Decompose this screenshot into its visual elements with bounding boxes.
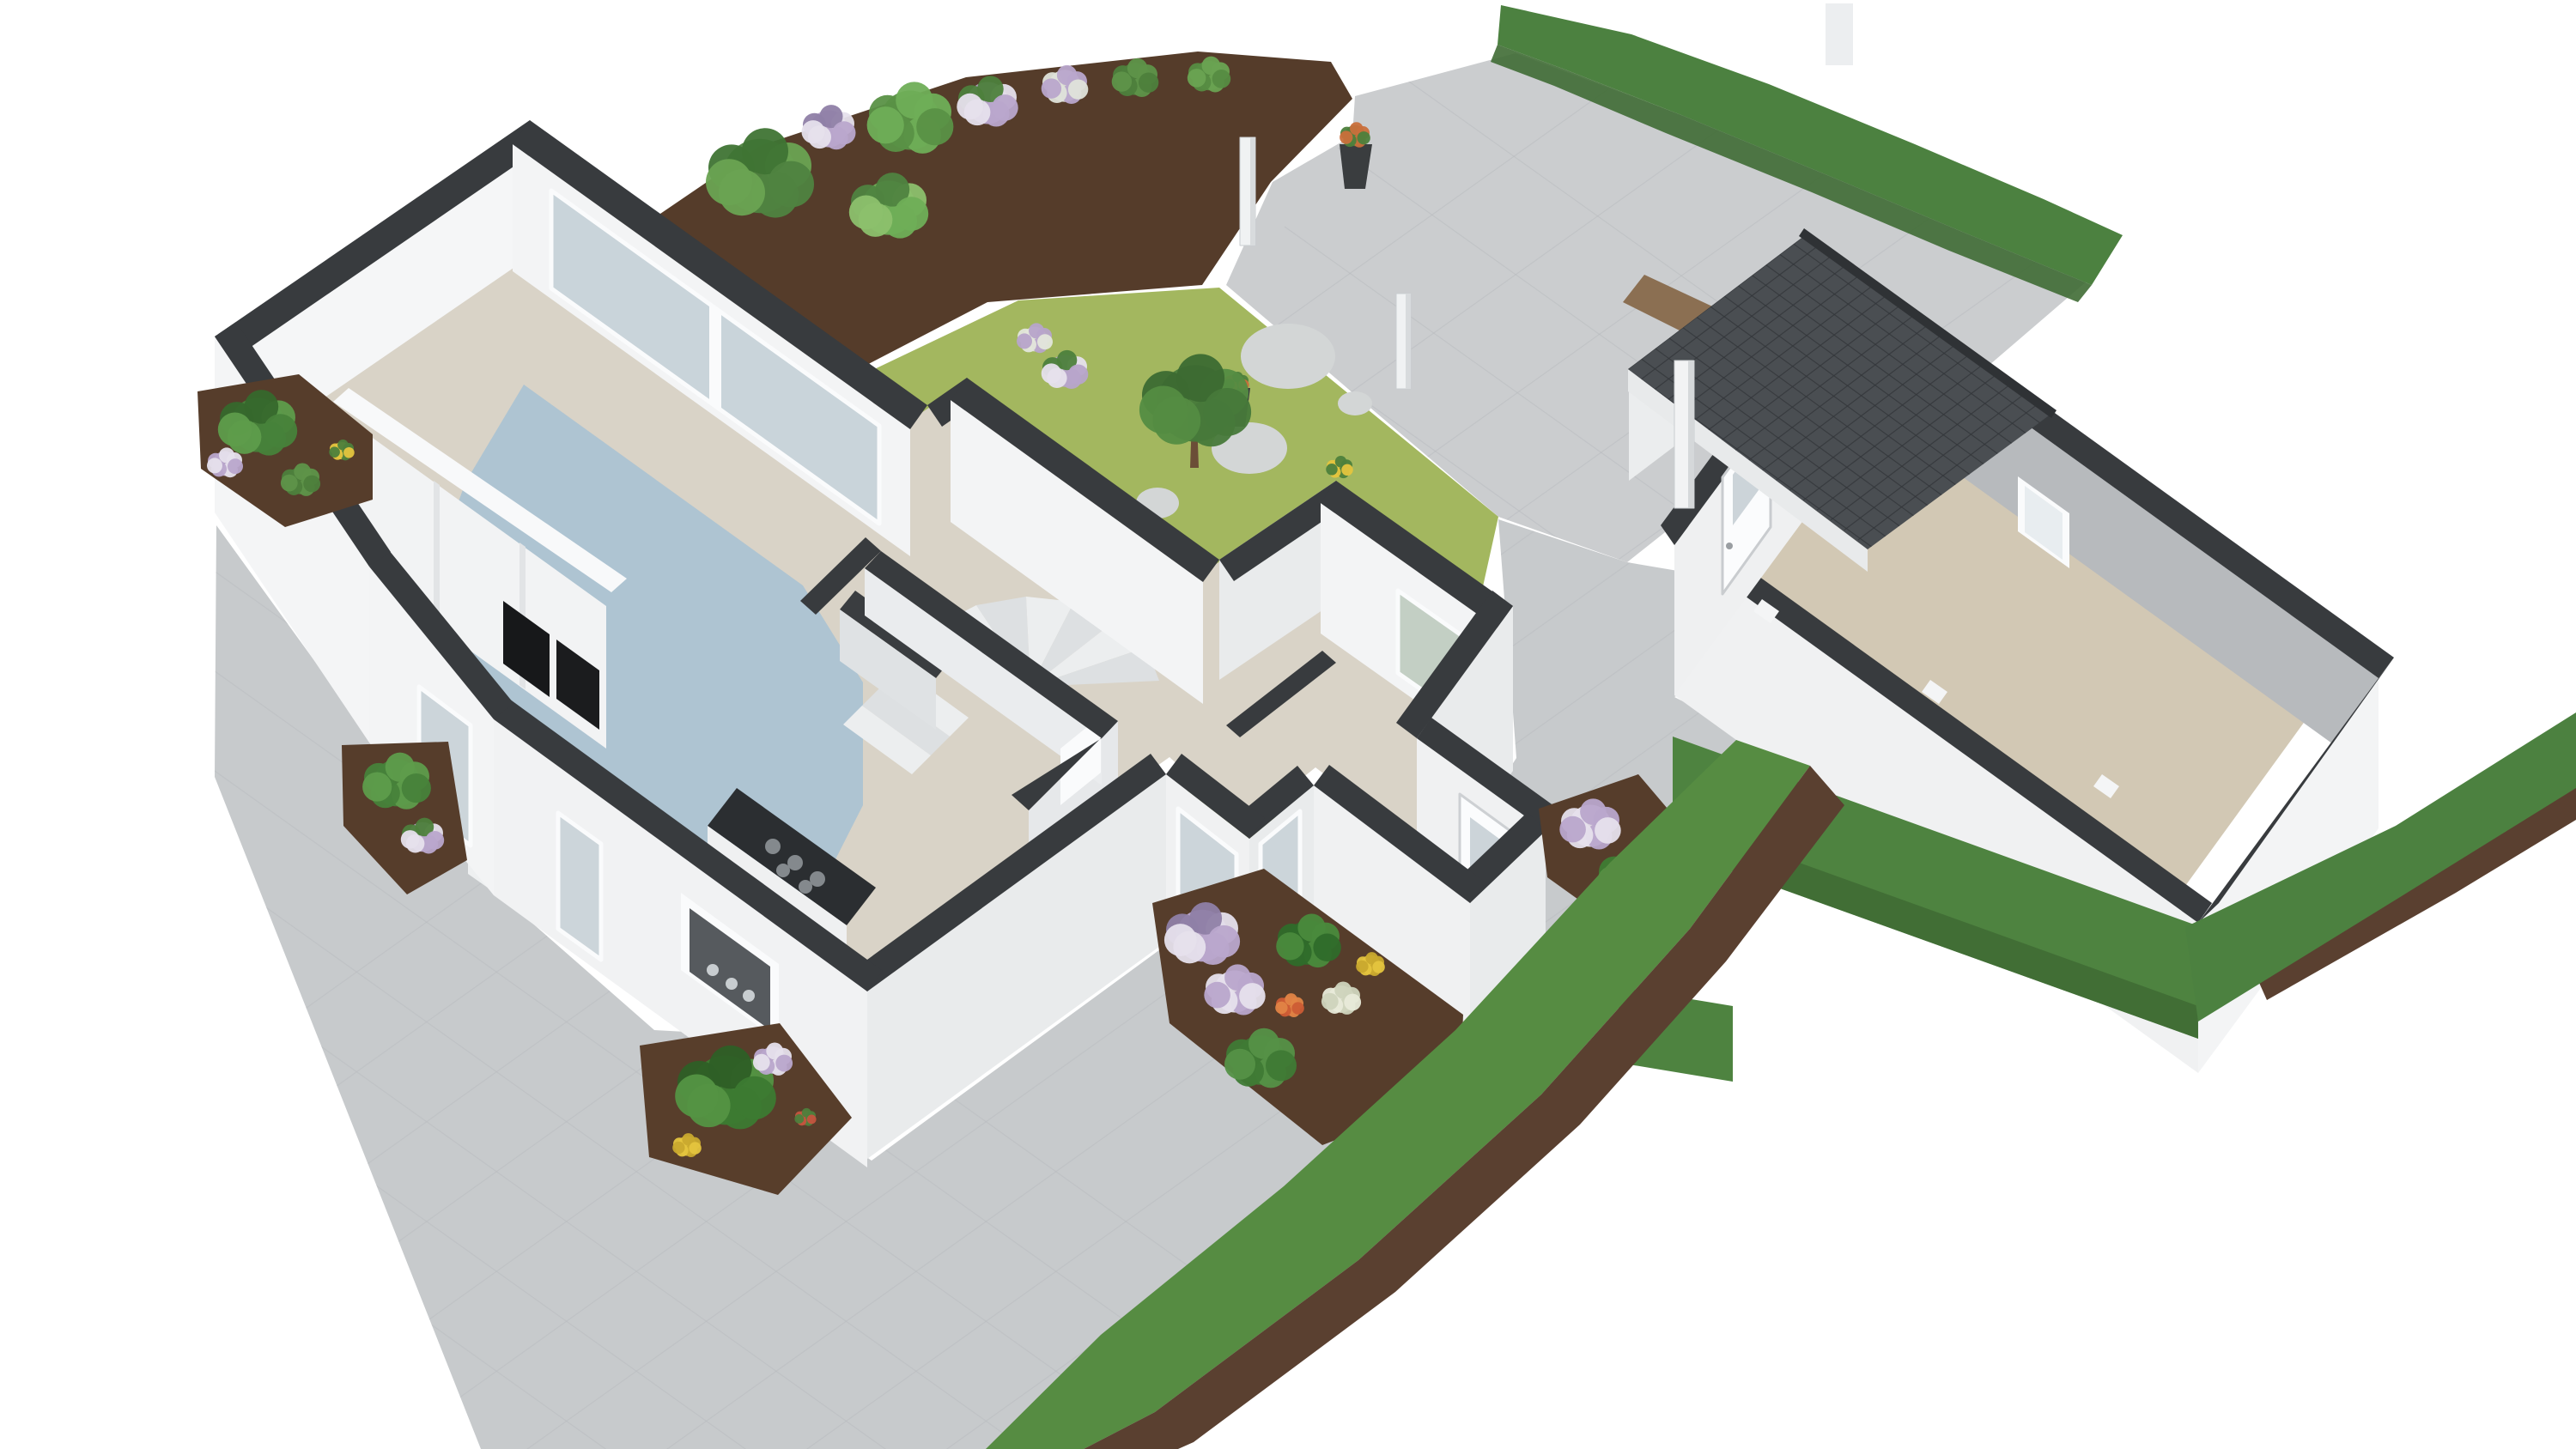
sliding-door-mullion: [709, 304, 721, 410]
cooktop-burner: [765, 839, 781, 854]
cabinet-seam: [434, 481, 440, 627]
stepping-stone: [1241, 324, 1335, 389]
cooktop-burner: [787, 855, 803, 870]
window-dish: [743, 990, 755, 1002]
garage-door-handle: [1726, 543, 1733, 549]
fence-post: [1826, 3, 1853, 65]
window-dish: [726, 978, 738, 990]
floorplan-3d-render-stage: [0, 0, 2576, 1449]
lamp-post-shade: [1250, 137, 1255, 246]
cooktop-burner: [799, 880, 812, 894]
stepping-stone: [1338, 391, 1372, 415]
cooktop-burner: [776, 864, 790, 877]
lamp-post-shade: [1406, 294, 1411, 389]
roof-support-post-shade: [1688, 361, 1694, 508]
floorplan-3d-scene: [0, 0, 2576, 1449]
window-dish: [707, 964, 719, 976]
cooktop-burner: [810, 871, 825, 887]
